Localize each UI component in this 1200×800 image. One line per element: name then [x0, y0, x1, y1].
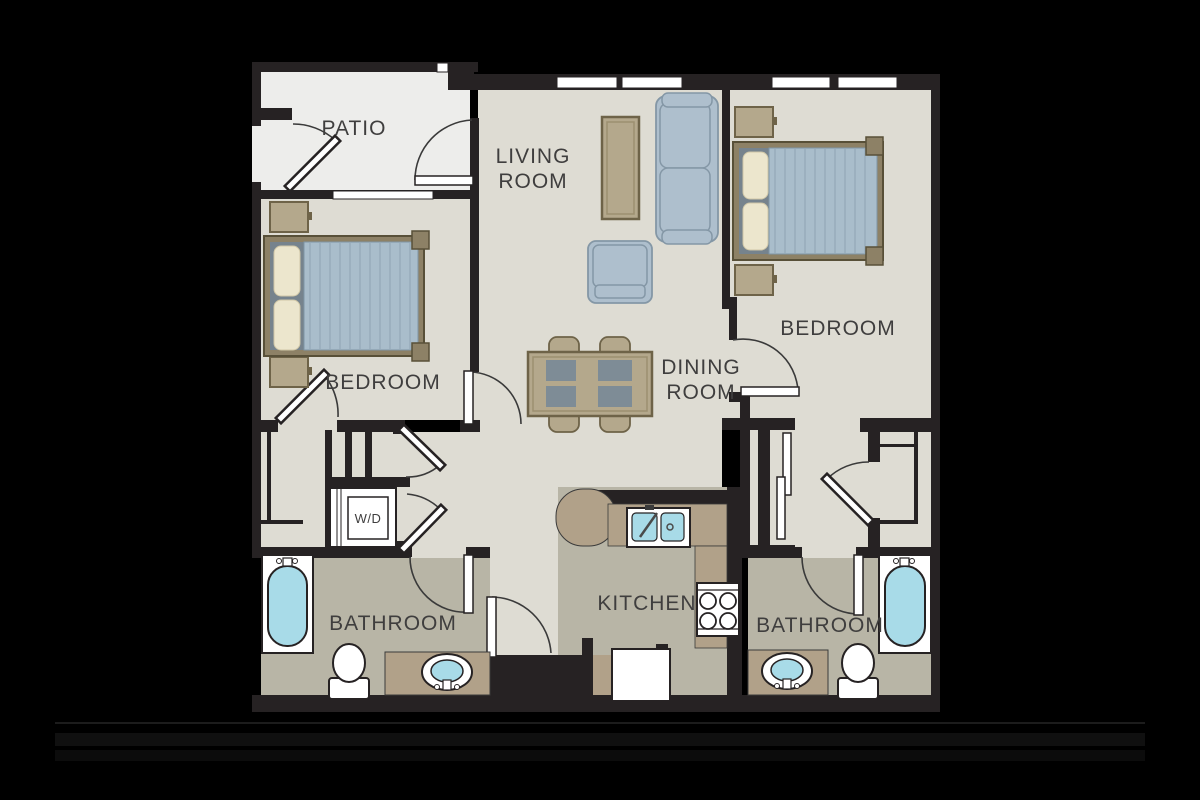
toilet: [838, 644, 878, 699]
counter-rounded-end: [556, 489, 616, 546]
faucet-base: [645, 505, 654, 510]
window: [437, 63, 448, 72]
tub-basin: [268, 566, 307, 646]
sink-basin: [431, 660, 463, 682]
bed-post: [412, 343, 429, 361]
wall-segment: [252, 199, 261, 558]
room-label-living-1: LIVING: [496, 145, 571, 168]
room-label-bedroom-left: BEDROOM: [325, 371, 441, 394]
tub-spout: [900, 558, 909, 566]
bath-right-door-opening: [802, 547, 856, 558]
nightstand: [735, 107, 773, 137]
wall-segment: [750, 418, 795, 430]
washer-dryer-label: W/D: [355, 511, 382, 526]
living-hall-door: [464, 371, 473, 424]
sliding-closet-door: [777, 477, 785, 539]
wall-segment: [558, 657, 593, 668]
faucet-knob: [775, 684, 780, 689]
bathtub: [879, 555, 931, 653]
wall-segment: [722, 297, 737, 309]
fine-print-rule: [55, 722, 1145, 724]
faucet-knob: [795, 684, 800, 689]
wall-segment: [722, 90, 730, 300]
tub-basin: [885, 566, 925, 646]
armchair: [588, 241, 652, 303]
bed: [264, 231, 429, 361]
wall-segment: [868, 432, 880, 462]
pillow: [743, 203, 768, 250]
faucet: [443, 680, 451, 690]
wall-segment: [758, 418, 770, 550]
nightstand-knob: [307, 367, 312, 375]
floor-plan: W/D PATIO LIVING ROOM BEDROOM BEDROOM DI…: [0, 0, 1200, 800]
pillow: [743, 152, 768, 199]
wall-segment: [448, 62, 474, 90]
bathroom-left-door: [464, 555, 473, 613]
window: [557, 77, 617, 88]
stove: [697, 583, 739, 636]
wall-segment: [729, 309, 737, 340]
faucet: [783, 679, 791, 689]
wall-segment: [252, 108, 292, 120]
closet-shelf-line: [880, 520, 918, 524]
sofa-cushion: [660, 168, 710, 233]
wall-segment: [470, 198, 479, 372]
window: [333, 191, 433, 199]
nightstand: [270, 357, 308, 387]
sink-basin: [771, 659, 803, 681]
placemat: [598, 360, 632, 381]
room-label-bathroom-left: BATHROOM: [329, 612, 457, 635]
bathroom-right-door: [854, 555, 863, 615]
pillow: [274, 246, 300, 296]
faucet-knob: [455, 685, 460, 690]
toilet: [329, 644, 369, 699]
wall-segment: [478, 672, 600, 695]
closet-partition: [365, 430, 372, 477]
faucet-knob: [435, 685, 440, 690]
wall-segment: [860, 418, 932, 432]
closet-partition: [261, 520, 303, 524]
kitchen-sink: [627, 505, 690, 547]
room-label-dining-1: DINING: [661, 356, 741, 379]
fine-print-text-row: [55, 733, 1145, 746]
tub-knob: [894, 559, 899, 564]
patio-gate-opening: [252, 120, 261, 183]
wall-segment: [325, 477, 410, 487]
room-label-dining-2: ROOM: [666, 381, 735, 404]
bed-post: [412, 231, 429, 249]
room-label-bedroom-right: BEDROOM: [780, 317, 896, 340]
entry-door: [487, 597, 496, 657]
nightstand: [735, 265, 773, 295]
nightstand-knob: [307, 212, 312, 220]
closet-shelf-line: [880, 444, 918, 447]
bath-left-door-opening: [411, 547, 466, 558]
placemat: [546, 360, 576, 381]
washer-dryer: W/D: [330, 488, 396, 547]
bed: [733, 137, 883, 265]
window: [772, 77, 830, 88]
wall-segment: [722, 418, 750, 430]
placemat: [598, 386, 632, 407]
bed-post: [866, 137, 883, 155]
toilet-bowl: [333, 644, 365, 682]
window: [838, 77, 897, 88]
counter: [593, 655, 612, 695]
fine-print-text-row: [55, 750, 1145, 761]
nightstand-knob: [772, 117, 777, 125]
tub-knob: [910, 559, 915, 564]
bedroom-right-door: [741, 387, 799, 396]
patio-living-door: [415, 176, 473, 185]
vanity-sink: [385, 652, 490, 695]
sofa-cushion: [660, 103, 710, 168]
armchair-seat: [593, 245, 647, 287]
nightstand-knob: [772, 275, 777, 283]
pillow: [274, 300, 300, 350]
tub-knob: [293, 559, 298, 564]
sofa-arm: [662, 93, 712, 107]
tub-spout: [283, 558, 292, 566]
window: [622, 77, 682, 88]
room-label-bathroom-right: BATHROOM: [756, 614, 884, 637]
room-label-patio: PATIO: [322, 117, 387, 140]
sofa-arm: [662, 230, 712, 244]
fridge-handle: [656, 644, 668, 650]
bathtub: [262, 555, 313, 653]
tub-knob: [277, 559, 282, 564]
refrigerator: [612, 644, 670, 701]
armchair-front-cushion: [595, 285, 645, 298]
floor-plan-canvas: W/D PATIO LIVING ROOM BEDROOM BEDROOM DI…: [0, 0, 1200, 800]
room-label-kitchen: KITCHEN: [597, 592, 696, 615]
closet-partition: [345, 430, 352, 477]
toilet-bowl: [842, 644, 874, 682]
placemat: [546, 386, 576, 407]
vanity-sink: [748, 650, 828, 695]
sofa: [656, 93, 718, 244]
wall-segment: [931, 74, 940, 712]
bed-post: [866, 247, 883, 265]
closet-partition: [325, 430, 332, 477]
wall-segment: [470, 118, 479, 198]
closet-partition: [267, 430, 271, 523]
room-label-living-2: ROOM: [498, 170, 567, 193]
fine-print-strip: [55, 722, 1145, 761]
nightstand: [270, 202, 308, 232]
wall-segment: [740, 547, 802, 558]
